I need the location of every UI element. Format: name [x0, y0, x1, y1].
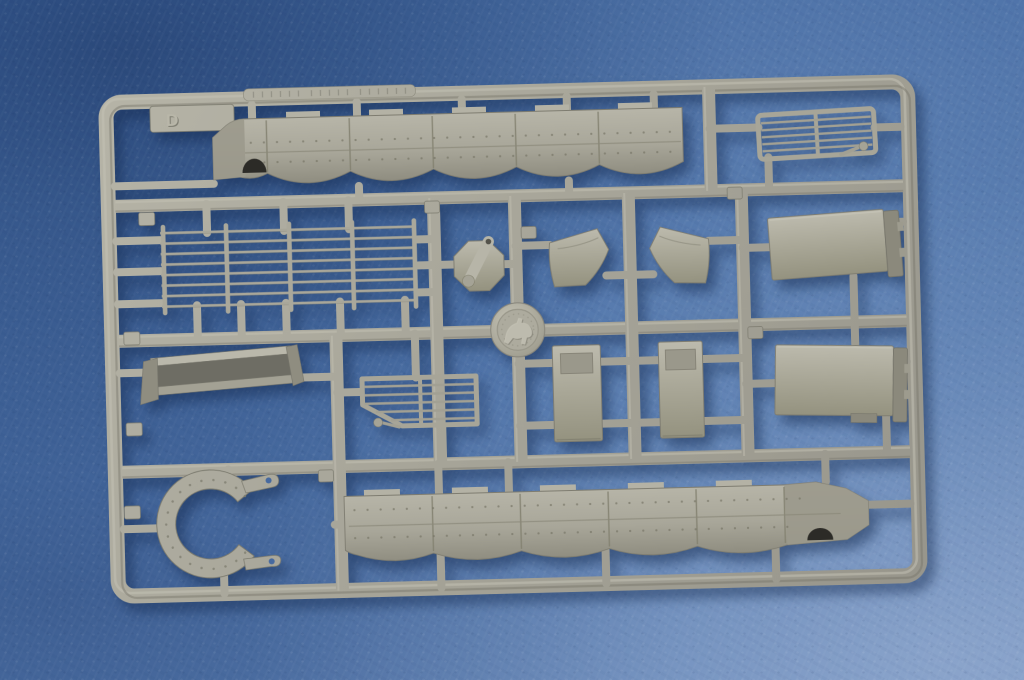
part-number-tag: [521, 226, 536, 238]
sprue-letter-tab: D D: [150, 104, 235, 132]
part-number-tag: [124, 332, 140, 345]
part-stowage-bin-lower: [775, 345, 911, 423]
sprue-letter: D: [166, 111, 179, 130]
part-stowage-bin-upper: [767, 208, 907, 286]
letter-tab-plate: [150, 104, 235, 132]
part-number-tag: [139, 212, 155, 225]
bin-upper-panel: [767, 209, 888, 280]
part-hull-plate-right: [658, 341, 704, 438]
grille-right-bracket-pad: [859, 141, 869, 151]
part-hatch-with-lever: [453, 238, 504, 291]
bin-lower-top-highlight: [777, 347, 891, 348]
hull-plate-right-recess: [665, 349, 696, 370]
bin-lower-latch: [904, 390, 910, 399]
bin-lower-foot: [851, 413, 877, 422]
skirt-upper-body: [212, 107, 684, 185]
mud-flap-right-body: [649, 226, 710, 285]
part-channel-bracket: [139, 344, 304, 404]
bin-upper-latch: [899, 248, 906, 257]
part-side-skirt-upper: [212, 101, 684, 185]
channel-left-flange: [139, 358, 158, 404]
photo: D D: [0, 0, 1024, 680]
mesh-rack-stays: [163, 221, 416, 314]
ring-tab-top: [241, 474, 279, 493]
sprue-photo: D D: [0, 0, 1024, 680]
part-number-tag: [124, 506, 140, 519]
part-maker-medallion: [490, 302, 545, 357]
hatch-pivot: [462, 275, 474, 287]
mud-flap-left-body: [549, 228, 610, 287]
part-number-tag: [318, 470, 333, 482]
bin-lower-latch: [904, 364, 910, 373]
part-turret-ring-segment: [155, 468, 281, 579]
sprue-runner-d: D D: [102, 72, 922, 599]
part-number-tag: [727, 187, 742, 199]
part-number-tag: [748, 326, 763, 338]
bin-lower-panel: [775, 345, 894, 416]
hull-plate-left-recess: [560, 353, 593, 374]
part-engine-grille-right: [757, 108, 875, 159]
part-engine-grille-center: [362, 376, 477, 428]
part-number-tag: [424, 201, 439, 213]
bin-lower-fold: [893, 348, 908, 422]
part-mud-flap-left: [549, 228, 610, 287]
bin-upper-latch: [897, 222, 904, 231]
part-number-tag: [126, 423, 142, 436]
part-mud-flap-right: [649, 226, 710, 285]
grille-center-bracket-pad: [373, 418, 382, 427]
part-hull-plate-left: [552, 345, 602, 442]
ring-annulus: [155, 469, 254, 579]
part-mesh-rack: [160, 220, 418, 313]
